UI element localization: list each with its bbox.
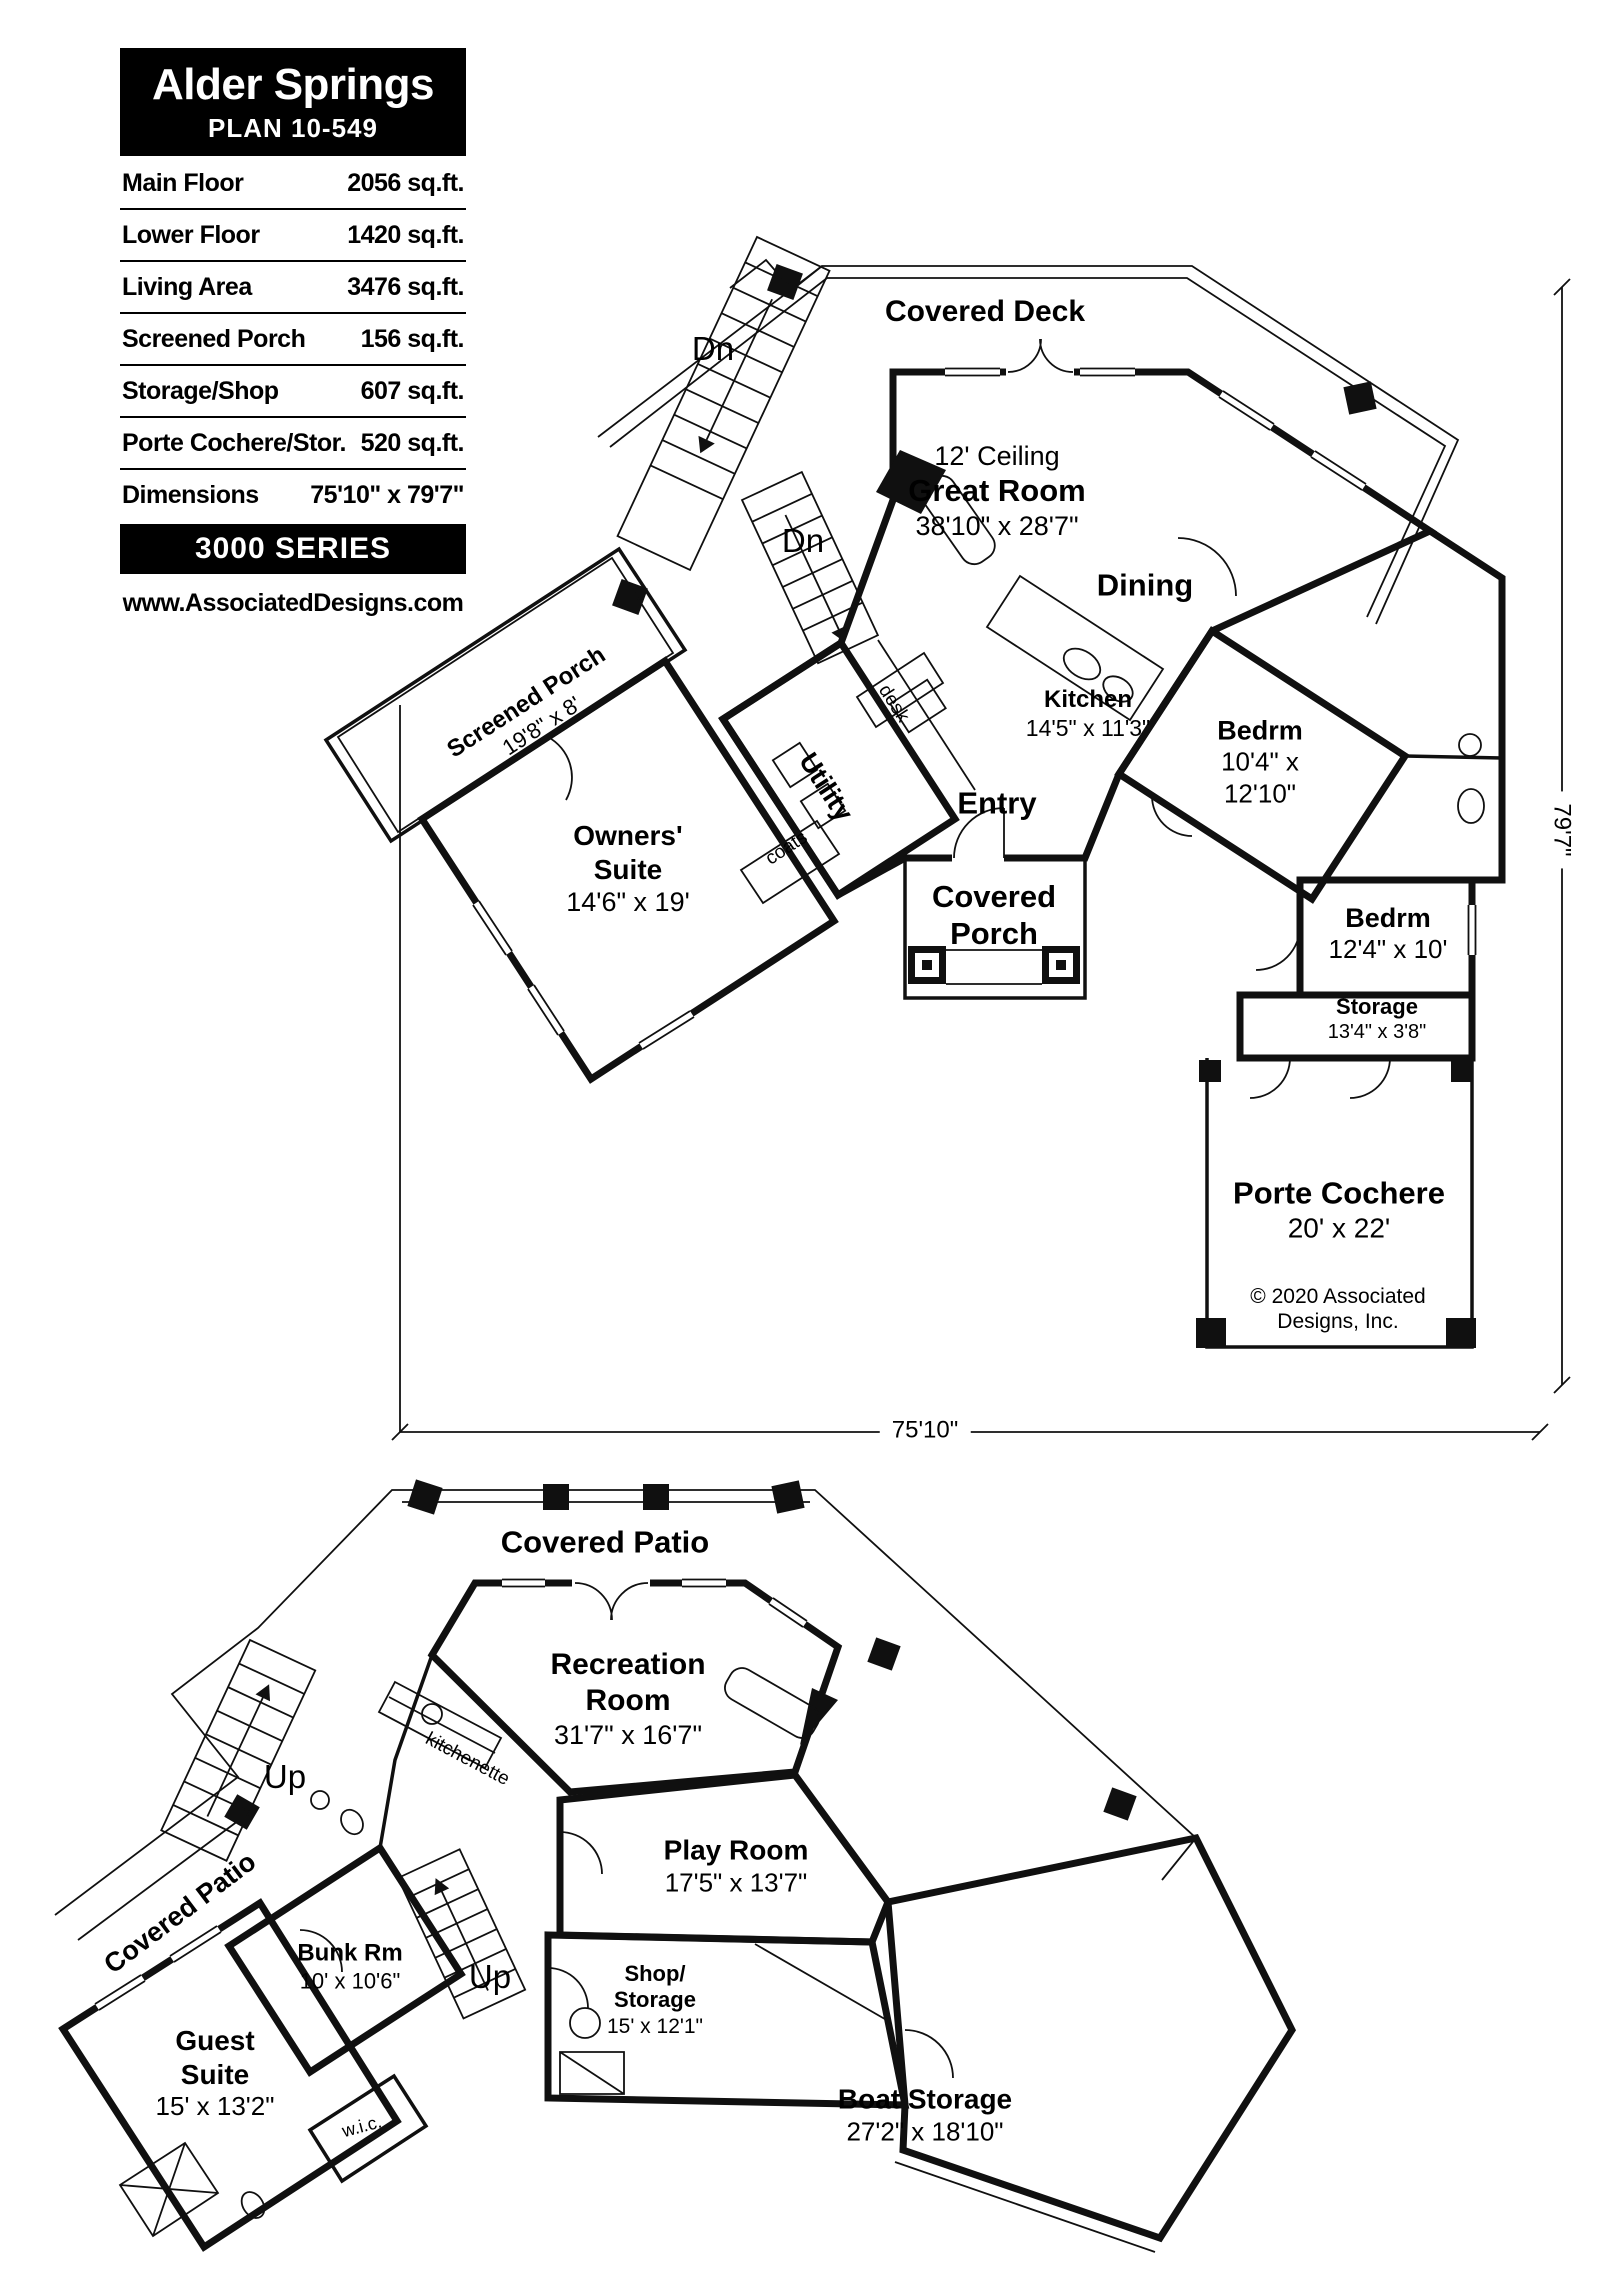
label-storage: Storage 13'4" x 3'8" — [1328, 994, 1427, 1044]
patio-post — [771, 1480, 804, 1513]
label-shop-storage: Shop/ Storage 15' x 12'1" — [607, 1961, 703, 2039]
copyright-notice: © 2020 Associated Designs, Inc. — [1250, 1284, 1425, 1334]
guest-suite-dims: 15' x 13'2" — [156, 2091, 275, 2122]
great-room-dims: 38'10" x 28'7" — [908, 510, 1085, 542]
deck-post — [1343, 381, 1376, 414]
row-value: 2056 sq.ft. — [347, 169, 464, 198]
kitchen-name: Kitchen — [1026, 686, 1150, 715]
row-value: 75'10" x 79'7" — [310, 481, 464, 510]
kitchen-dims: 14'5" x 11'3" — [1026, 715, 1150, 743]
shop-line2: Storage — [607, 1987, 703, 2013]
label-bedroom-lower: Bedrm 12'4" x 10' — [1329, 902, 1448, 966]
kitchen-fixtures — [878, 576, 1163, 790]
label-play-room: Play Room 17'5" x 13'7" — [664, 1834, 809, 1899]
interior-stairs-down — [742, 472, 878, 663]
label-great-room: 12' Ceiling Great Room 38'10" x 28'7" — [908, 440, 1085, 542]
floor-plan-page: Alder Springs PLAN 10-549 Main Floor2056… — [0, 0, 1600, 2283]
owners-suite-door — [548, 737, 572, 800]
table-row: Screened Porch156 sq.ft. — [120, 312, 466, 364]
row-label: Living Area — [122, 273, 252, 302]
label-bedroom-upper: Bedrm 10'4" x 12'10" — [1217, 715, 1303, 810]
label-kitchen: Kitchen 14'5" x 11'3" — [1026, 686, 1150, 742]
website-url: www.AssociatedDesigns.com — [120, 589, 466, 618]
bedroom-upper-name: Bedrm — [1217, 715, 1303, 747]
guest-suite-name1: Guest — [156, 2024, 275, 2058]
table-row: Porte Cochere/Stor.520 sq.ft. — [120, 416, 466, 468]
area-table: Main Floor2056 sq.ft. Lower Floor1420 sq… — [120, 158, 466, 520]
series-banner: 3000 SERIES — [120, 524, 466, 574]
label-covered-porch: Covered Porch — [932, 878, 1056, 952]
label-dining: Dining — [1097, 566, 1193, 603]
deck-post — [767, 264, 803, 300]
row-value: 520 sq.ft. — [361, 429, 464, 458]
bedroom-lower-name: Bedrm — [1329, 902, 1448, 934]
shop-dims: 15' x 12'1" — [607, 2014, 703, 2039]
great-room-ceiling-note: 12' Ceiling — [908, 440, 1085, 472]
recreation-room-openings — [502, 1580, 807, 1628]
owners-suite-name1: Owners' — [566, 819, 689, 853]
patio-post — [867, 1637, 900, 1670]
great-room-windows — [945, 339, 1135, 376]
bunk-room-name: Bunk Rm — [297, 1939, 402, 1968]
guest-suite-name2: Suite — [156, 2057, 275, 2091]
shop-line1: Shop/ — [607, 1961, 703, 1987]
recreation-dims: 31'7" x 16'7" — [550, 1719, 705, 1751]
plan-title-block: Alder Springs PLAN 10-549 — [120, 48, 466, 156]
equipment — [560, 2052, 624, 2094]
patio-post — [543, 1484, 569, 1510]
row-label: Screened Porch — [122, 325, 305, 354]
exterior-stairs-down — [618, 237, 830, 570]
storage-dims: 13'4" x 3'8" — [1328, 1020, 1427, 1044]
table-row: Storage/Shop607 sq.ft. — [120, 364, 466, 416]
covered-porch-line2: Porch — [932, 915, 1056, 952]
label-covered-patio-top: Covered Patio — [501, 1523, 709, 1560]
bedroom-lower-dims: 12'4" x 10' — [1329, 935, 1448, 966]
porte-cochere-name: Porte Cochere — [1233, 1175, 1445, 1212]
recreation-name2: Room — [550, 1683, 705, 1719]
patio-post — [643, 1484, 669, 1510]
label-stairs-up-outside: Up — [264, 1757, 306, 1797]
door-arc — [560, 1832, 602, 1874]
play-room-dims: 17'5" x 13'7" — [664, 1867, 809, 1898]
patio-post — [407, 1479, 442, 1514]
bedroom-lower-window — [1469, 905, 1476, 955]
table-row: Living Area3476 sq.ft. — [120, 260, 466, 312]
owners-suite-dims: 14'6" x 19' — [566, 886, 689, 918]
row-label: Main Floor — [122, 169, 243, 198]
boat-storage-walls — [888, 1838, 1292, 2238]
plan-title: Alder Springs — [120, 60, 466, 110]
main-floor-plan — [326, 237, 1570, 1440]
sink — [1459, 734, 1481, 756]
play-room-name: Play Room — [664, 1834, 809, 1868]
owners-suite-windows — [473, 901, 694, 1049]
bedroom-upper-dims1: 10'4" x — [1217, 747, 1303, 778]
covered-porch-line1: Covered — [932, 878, 1056, 915]
bedroom-upper-dims2: 12'10" — [1217, 778, 1303, 809]
row-value: 1420 sq.ft. — [347, 221, 464, 250]
toilet — [1458, 789, 1484, 823]
boat-storage-dims: 27'2" x 18'10" — [838, 2116, 1012, 2147]
table-row: Dimensions75'10" x 79'7" — [120, 468, 466, 520]
dimension-width: 75'10" — [880, 1417, 971, 1446]
recreation-name1: Recreation — [550, 1647, 705, 1683]
label-guest-suite: Guest Suite 15' x 13'2" — [156, 2024, 275, 2122]
label-porte-cochere: Porte Cochere 20' x 22' — [1233, 1175, 1445, 1246]
label-stairs-dn-outside: Dn — [692, 329, 734, 369]
sink — [311, 1791, 329, 1809]
label-boat-storage: Boat Storage 27'2" x 18'10" — [838, 2083, 1012, 2148]
label-covered-deck: Covered Deck — [885, 294, 1085, 330]
door-arc — [1256, 926, 1300, 970]
dimension-height: 79'7" — [1547, 791, 1576, 868]
table-row: Lower Floor1420 sq.ft. — [120, 208, 466, 260]
table-row: Main Floor2056 sq.ft. — [120, 158, 466, 208]
door-arc — [905, 2030, 953, 2078]
label-entry: Entry — [957, 784, 1036, 821]
patio-post — [1103, 1787, 1136, 1820]
owners-suite-name2: Suite — [566, 853, 689, 887]
row-label: Lower Floor — [122, 221, 260, 250]
label-owners-suite: Owners' Suite 14'6" x 19' — [566, 819, 689, 919]
label-stairs-up-inside: Up — [469, 1957, 511, 1997]
row-value: 156 sq.ft. — [361, 325, 464, 354]
plan-number: PLAN 10-549 — [120, 113, 466, 144]
boat-storage-name: Boat Storage — [838, 2083, 1012, 2117]
copyright-line2: Designs, Inc. — [1250, 1309, 1425, 1334]
row-value: 3476 sq.ft. — [347, 273, 464, 302]
label-recreation-room: Recreation Room 31'7" x 16'7" — [550, 1647, 705, 1751]
great-room-name: Great Room — [908, 472, 1085, 509]
toilet — [337, 1806, 368, 1839]
label-bunk-room: Bunk Rm 10' x 10'6" — [297, 1939, 402, 1994]
row-value: 607 sq.ft. — [361, 377, 464, 406]
door-arc — [548, 1968, 588, 2008]
copyright-line1: © 2020 Associated — [1250, 1284, 1425, 1309]
label-stairs-dn-inside: Dn — [782, 521, 824, 561]
row-label: Dimensions — [122, 481, 259, 510]
row-label: Porte Cochere/Stor. — [122, 429, 346, 458]
bunk-room-dims: 10' x 10'6" — [297, 1968, 402, 1994]
plan-info-box: Alder Springs PLAN 10-549 Main Floor2056… — [120, 48, 466, 618]
row-label: Storage/Shop — [122, 377, 279, 406]
storage-name: Storage — [1328, 994, 1427, 1020]
water-heater — [570, 2008, 600, 2038]
exterior-stairs-up — [161, 1640, 315, 1861]
porte-cochere-dims: 20' x 22' — [1233, 1212, 1445, 1246]
